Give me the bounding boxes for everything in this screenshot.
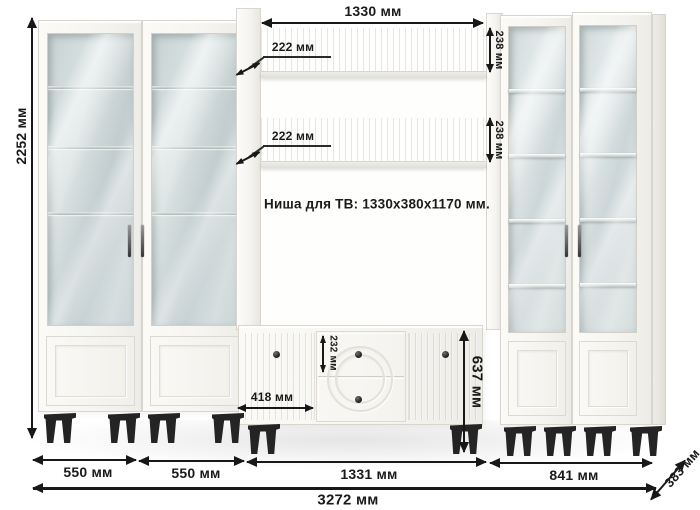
tv-niche-caption: Ниша для ТВ: 1330x380x1170 мм. — [264, 197, 490, 212]
left-cabinet-2 — [142, 20, 246, 412]
lower-door — [46, 336, 135, 406]
right-side-panel — [652, 14, 666, 425]
dim-arrow-total-width — [33, 487, 656, 490]
dim-label-left-cabinet2-width: 550 мм — [171, 465, 220, 481]
dim-label-total-height: 2252 мм — [13, 107, 29, 164]
stand-right-door — [408, 333, 478, 420]
niche-left-panel — [236, 8, 261, 330]
tv-stand — [238, 325, 483, 425]
dim-leader — [263, 145, 331, 147]
dim-arrow-left-cabinet2-width — [139, 460, 244, 462]
dim-arrow-shelf1-height — [489, 28, 491, 72]
door-handle — [565, 225, 568, 257]
lower-door — [150, 336, 239, 406]
glass-reflection — [152, 34, 237, 325]
glass-reflection — [509, 27, 565, 332]
dim-label-drawer-height: 232 мм — [328, 335, 339, 370]
glass-door — [151, 33, 238, 326]
dim-arrow-center-width — [247, 461, 486, 463]
door-frame — [159, 345, 230, 397]
dim-label-total-width: 3272 мм — [317, 492, 378, 509]
drawer-knob — [355, 396, 362, 403]
dim-label-center-width: 1331 мм — [340, 466, 397, 482]
dim-arrow-left-cabinet1-width — [33, 459, 136, 461]
stand-door-knob — [273, 351, 280, 358]
dim-label-shelf2-height: 238 мм — [493, 121, 505, 160]
dim-label-shelf1-height: 238 мм — [493, 31, 505, 70]
door-frame — [517, 350, 557, 407]
dim-arrow-shelf2-height — [489, 118, 491, 162]
right-cabinet-1 — [500, 15, 572, 425]
door-frame — [55, 345, 126, 397]
door-handle — [141, 225, 144, 257]
drawer-knob — [355, 351, 362, 358]
wall-shelf-2-board — [261, 162, 486, 168]
door-frame — [588, 350, 628, 407]
stand-door-knob — [442, 351, 449, 358]
dim-leader — [263, 56, 331, 58]
dim-arrow-niche-width — [262, 22, 483, 24]
dim-label-right-cabinets-width: 841 мм — [549, 467, 598, 483]
door-handle — [578, 225, 581, 257]
dim-label-shelf2-depth: 222 мм — [272, 129, 314, 143]
glass-door — [508, 26, 566, 333]
dim-arrow-drawer-height — [322, 336, 324, 372]
glass-reflection — [580, 26, 636, 332]
dim-arrow-door-width — [238, 407, 313, 409]
dim-arrow-total-height — [31, 18, 33, 438]
lower-door — [508, 341, 566, 416]
dim-label-shelf1-depth: 222 мм — [272, 40, 314, 54]
wall-shelf-1-board — [261, 72, 486, 78]
dim-arrow-stand-height — [463, 331, 465, 452]
glass-door — [579, 25, 637, 333]
dim-label-stand-height: 637 мм — [469, 356, 486, 409]
left-cabinet-1 — [38, 20, 142, 412]
right-cabinet-2 — [572, 12, 652, 425]
dim-arrow-right-cabinets-width — [490, 462, 652, 464]
dim-label-left-cabinet1-width: 550 мм — [63, 464, 112, 480]
door-handle — [128, 225, 131, 257]
dim-label-niche-width: 1330 мм — [344, 3, 401, 19]
glass-door — [47, 33, 134, 326]
furniture-dimension-diagram: 2252 мм 1330 мм 238 мм 222 мм 238 мм 222… — [0, 0, 700, 510]
dim-label-door-width: 418 мм — [251, 390, 293, 404]
lower-door — [579, 341, 637, 416]
glass-reflection — [48, 34, 133, 325]
